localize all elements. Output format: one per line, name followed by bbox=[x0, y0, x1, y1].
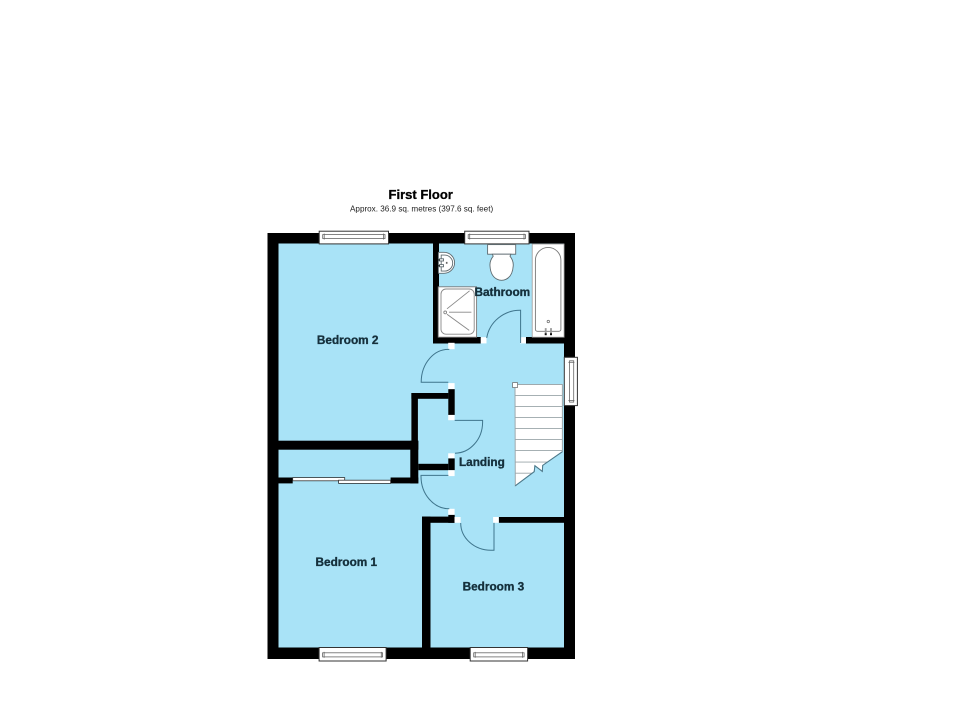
svg-text:Bathroom: Bathroom bbox=[474, 285, 530, 299]
svg-text:Landing: Landing bbox=[459, 455, 505, 469]
svg-text:First Floor: First Floor bbox=[389, 187, 453, 202]
svg-text:Approx. 36.9 sq. metres (397.6: Approx. 36.9 sq. metres (397.6 sq. feet) bbox=[350, 204, 493, 213]
svg-text:Bedroom 1: Bedroom 1 bbox=[315, 555, 377, 569]
svg-text:Bedroom 3: Bedroom 3 bbox=[463, 579, 525, 593]
svg-text:Bedroom 2: Bedroom 2 bbox=[317, 333, 379, 347]
